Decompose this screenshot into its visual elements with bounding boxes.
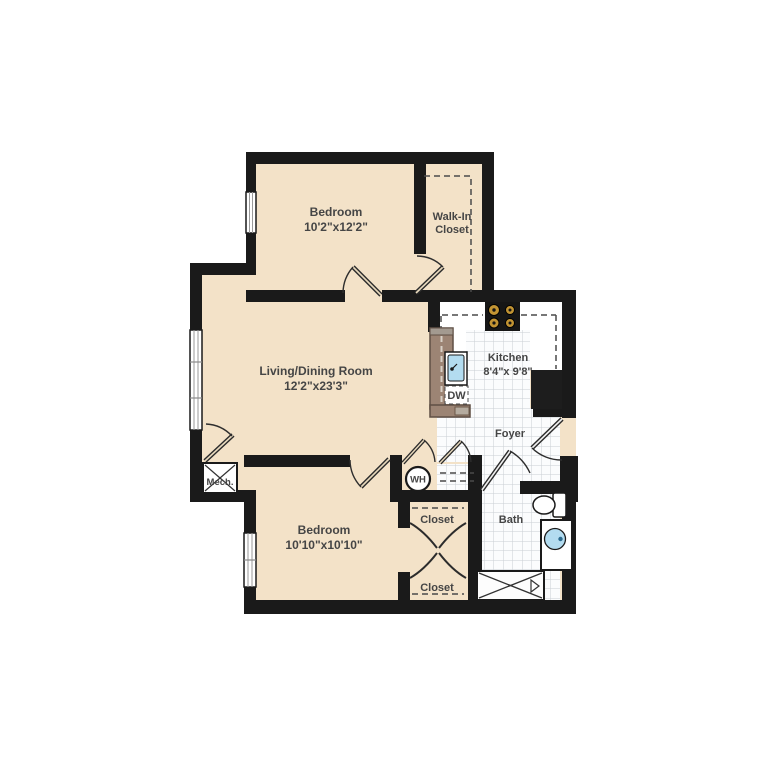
walk-in-closet-label-line1: Walk-In [433,211,472,223]
bedroom1-name: Bedroom [310,205,363,219]
wall-segment [520,481,568,494]
bedroom2-window [244,533,256,587]
wall-segment [244,587,256,602]
wall-segment [246,164,256,192]
counter-cap-top [430,328,453,335]
water-heater-label: WH [410,475,426,486]
bedroom1-dims: 10'2"x12'2" [304,220,368,234]
bath-label: Bath [499,514,524,526]
bedroom1-window [246,192,256,233]
water-heater-icon: WH [406,467,430,491]
wall-segment [482,152,494,302]
stove-icon [485,302,520,331]
wall-segment [382,290,574,302]
bathtub-icon [477,571,544,600]
walk-in-closet-label-line2: Closet [435,224,469,236]
wall-segment [244,600,576,614]
living-room-window [190,330,202,430]
wall-segment [562,290,576,418]
living-room-name: Living/Dining Room [259,364,372,378]
wall-segment [533,408,576,417]
dishwasher: DW [445,386,468,404]
kitchen-dims: 8'4"x 9'8" [483,366,532,378]
wall-segment [244,502,256,533]
foyer-label: Foyer [495,428,526,440]
closet-upper-label: Closet [420,514,454,526]
kitchen-name: Kitchen [488,352,529,364]
bedroom2-name: Bedroom [298,523,351,537]
dishwasher-label: DW [447,390,466,402]
wall-segment [414,164,426,254]
bedroom2-dims: 10'10"x10'10" [285,538,362,552]
vanity-sink-icon [541,520,572,570]
wall-segment [398,502,410,528]
wall-segment [246,152,494,164]
kitchen-sink-icon [445,352,467,385]
wall-segment [246,233,256,263]
wall-segment [246,290,345,302]
wall-segment [190,430,202,490]
closet-lower-label: Closet [420,582,454,594]
wall-segment [398,572,410,602]
counter-shelf [455,407,469,415]
mech-label: Mech. [207,477,234,488]
wall-segment [190,263,256,275]
floor-plan-page: DW [0,0,768,768]
floor-plan: DW [0,0,768,768]
living-room-dims: 12'2"x23'3" [284,379,348,393]
refrigerator-icon [531,370,562,409]
wall-segment [244,455,350,467]
wall-segment [190,275,202,330]
